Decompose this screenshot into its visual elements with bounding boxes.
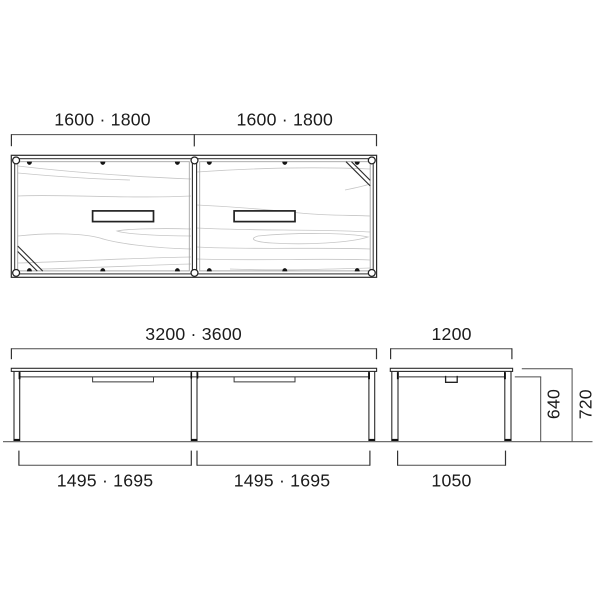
svg-text:1200: 1200 xyxy=(432,324,472,344)
svg-text:640: 640 xyxy=(544,389,564,419)
svg-text:3200 · 3600: 3200 · 3600 xyxy=(145,324,242,344)
svg-text:1495 · 1695: 1495 · 1695 xyxy=(57,470,154,490)
svg-text:1050: 1050 xyxy=(431,470,471,490)
svg-text:1600 · 1800: 1600 · 1800 xyxy=(236,110,333,130)
svg-text:1600 · 1800: 1600 · 1800 xyxy=(54,110,151,130)
svg-text:720: 720 xyxy=(576,389,596,419)
svg-text:1495 · 1695: 1495 · 1695 xyxy=(234,470,331,490)
